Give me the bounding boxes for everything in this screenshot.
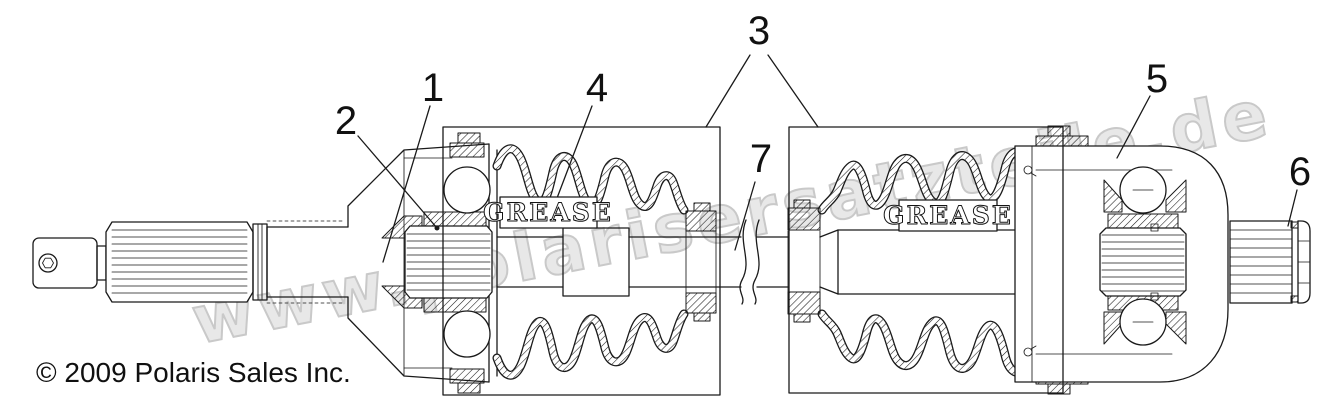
- left-stub-shaft: [33, 221, 348, 303]
- interconnecting-shaft: [497, 220, 1100, 304]
- callout-3: 3: [748, 11, 770, 51]
- callout-2: 2: [335, 101, 357, 141]
- right-stub-shaft: [1230, 221, 1310, 303]
- grease-label-left: GREASE: [483, 197, 613, 228]
- grease-text-right: GREASE: [883, 201, 1013, 230]
- callout-6: 6: [1289, 152, 1311, 192]
- grease-label-right: GREASE: [883, 200, 1013, 231]
- copyright-text: © 2009 Polaris Sales Inc.: [36, 357, 351, 389]
- callout-4: 4: [586, 68, 608, 108]
- left-outer-cv-joint: [348, 133, 497, 393]
- callout-5: 5: [1146, 59, 1168, 99]
- grease-text-left: GREASE: [483, 198, 613, 227]
- cv-axle-parts-diagram: www.polarisersatzteile.de: [0, 0, 1337, 418]
- axle-line-art: GREASE GREASE: [0, 0, 1337, 418]
- right-inner-cv-joint: [1015, 146, 1228, 382]
- callout-1: 1: [422, 68, 444, 108]
- callout-7: 7: [750, 139, 772, 179]
- left-boot: [497, 149, 716, 375]
